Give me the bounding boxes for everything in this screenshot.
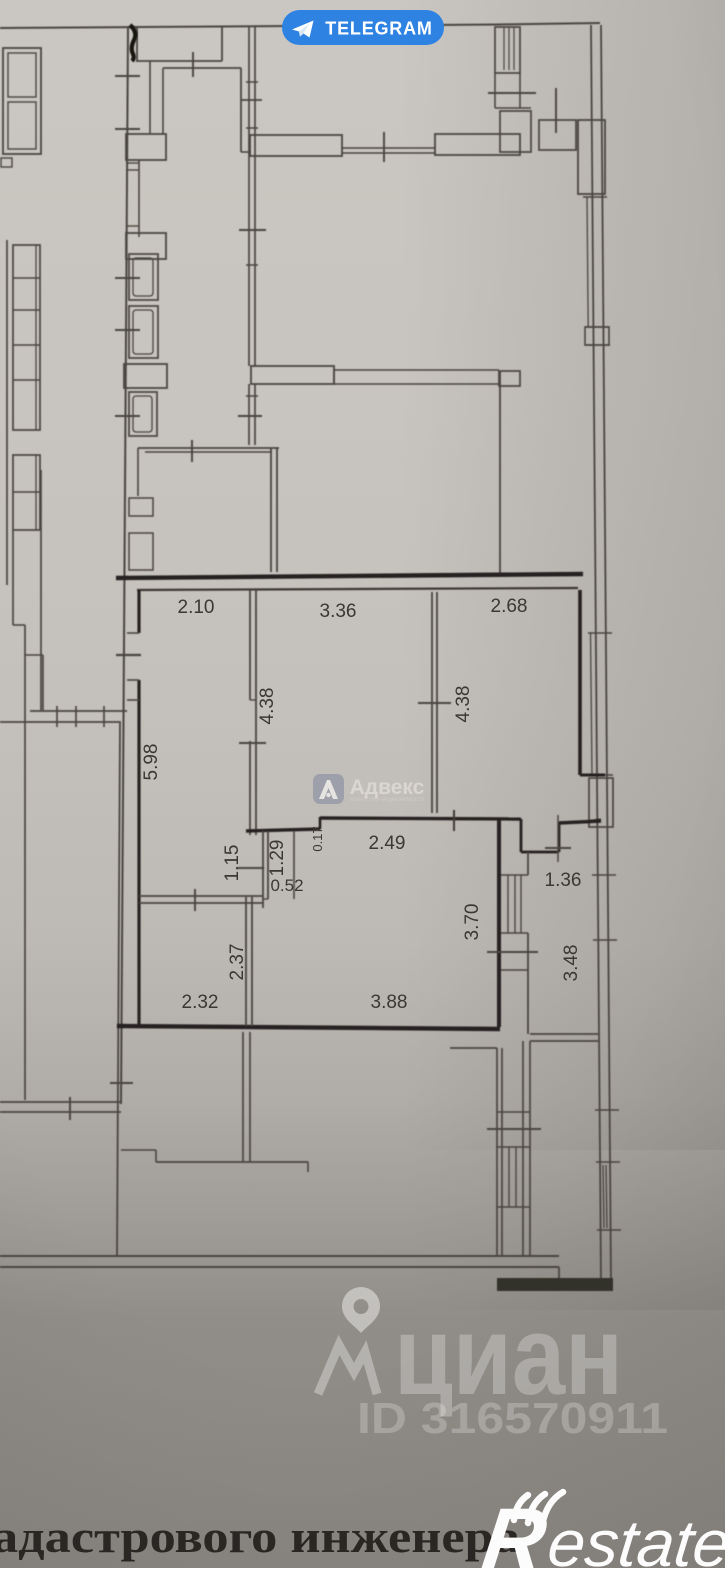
svg-text:TELEGRAM: TELEGRAM bbox=[325, 19, 432, 39]
svg-text:estate: estate bbox=[544, 1507, 725, 1568]
svg-text:2.32: 2.32 bbox=[182, 992, 219, 1013]
svg-text:1.36: 1.36 bbox=[545, 870, 582, 891]
svg-text:адастрового инженера: адастрового инженера bbox=[0, 1511, 520, 1562]
svg-text:5.98: 5.98 bbox=[141, 744, 162, 781]
svg-text:агентство недвижимости: агентство недвижимости bbox=[350, 796, 425, 803]
svg-text:ID 316570911: ID 316570911 bbox=[357, 1394, 668, 1443]
svg-text:0.17: 0.17 bbox=[310, 826, 325, 851]
svg-text:3.88: 3.88 bbox=[371, 992, 408, 1013]
svg-text:2.37: 2.37 bbox=[227, 944, 248, 981]
svg-text:0.52: 0.52 bbox=[270, 876, 303, 895]
svg-text:4.38: 4.38 bbox=[453, 686, 474, 723]
svg-text:1.29: 1.29 bbox=[267, 840, 288, 877]
svg-text:3.36: 3.36 bbox=[320, 601, 357, 622]
svg-text:2.10: 2.10 bbox=[178, 597, 215, 618]
svg-text:4.38: 4.38 bbox=[257, 688, 278, 725]
svg-text:1.15: 1.15 bbox=[222, 845, 243, 882]
svg-text:3.70: 3.70 bbox=[462, 904, 483, 941]
svg-text:2.68: 2.68 bbox=[491, 596, 528, 617]
svg-text:3.48: 3.48 bbox=[561, 945, 582, 982]
svg-text:2.49: 2.49 bbox=[369, 833, 406, 854]
